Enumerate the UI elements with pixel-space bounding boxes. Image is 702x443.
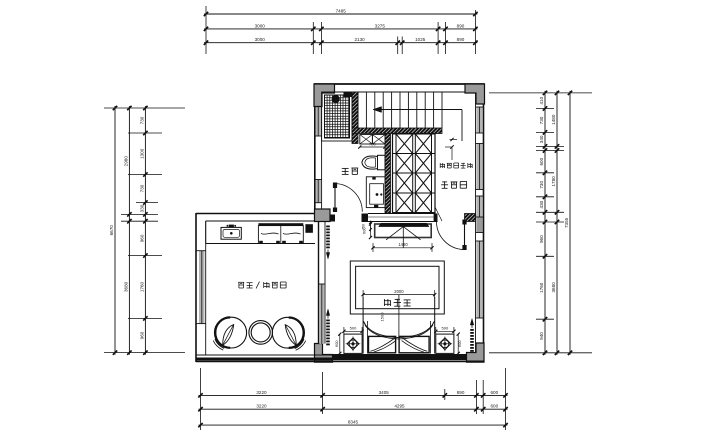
svg-text:3680: 3680 [124, 281, 129, 292]
svg-text:730: 730 [140, 184, 145, 192]
svg-text:3405: 3405 [379, 390, 390, 395]
svg-text:2130: 2130 [354, 37, 365, 42]
svg-text:1480: 1480 [398, 242, 408, 247]
svg-text:890: 890 [457, 37, 465, 42]
svg-text:1500: 1500 [380, 312, 385, 322]
svg-text:3275: 3275 [375, 23, 386, 28]
svg-text:960: 960 [140, 234, 145, 242]
svg-text:600: 600 [490, 390, 498, 395]
svg-text:1760: 1760 [539, 282, 544, 293]
svg-text:600: 600 [490, 404, 498, 409]
svg-text:1025: 1025 [415, 37, 426, 42]
svg-text:410: 410 [539, 96, 544, 104]
svg-text:3680: 3680 [551, 282, 556, 293]
svg-text:2980: 2980 [124, 156, 129, 167]
svg-text:750: 750 [362, 224, 366, 230]
svg-text:3220: 3220 [256, 390, 267, 395]
svg-text:1780: 1780 [551, 176, 556, 187]
svg-text:940: 940 [539, 332, 544, 340]
svg-text:3000: 3000 [255, 37, 266, 42]
svg-text:430: 430 [539, 200, 544, 208]
svg-text:500: 500 [350, 326, 357, 331]
svg-text:2000: 2000 [394, 289, 404, 294]
svg-text:3220: 3220 [256, 404, 267, 409]
svg-text:4295: 4295 [394, 404, 405, 409]
svg-text:600: 600 [539, 157, 544, 165]
svg-text:960: 960 [539, 235, 544, 243]
svg-text:3000: 3000 [255, 23, 266, 28]
svg-text:500: 500 [442, 326, 449, 331]
svg-text:1300: 1300 [140, 148, 145, 159]
svg-text:340: 340 [539, 135, 544, 143]
svg-text:730: 730 [140, 116, 145, 124]
svg-text:890: 890 [457, 23, 465, 28]
svg-text:730: 730 [539, 181, 544, 189]
svg-text:960: 960 [140, 331, 145, 339]
svg-text:7485: 7485 [336, 8, 347, 13]
svg-text:330: 330 [140, 204, 145, 212]
svg-text:730: 730 [539, 116, 544, 124]
svg-text:1760: 1760 [140, 281, 145, 292]
svg-text:780: 780 [369, 141, 376, 146]
svg-text:7355: 7355 [564, 217, 569, 228]
svg-text:600: 600 [334, 340, 339, 347]
svg-text:1480: 1480 [551, 114, 556, 125]
svg-text:6670: 6670 [109, 225, 114, 236]
svg-text:8345: 8345 [348, 420, 359, 425]
svg-text:600: 600 [457, 340, 462, 347]
svg-text:890: 890 [457, 390, 465, 395]
